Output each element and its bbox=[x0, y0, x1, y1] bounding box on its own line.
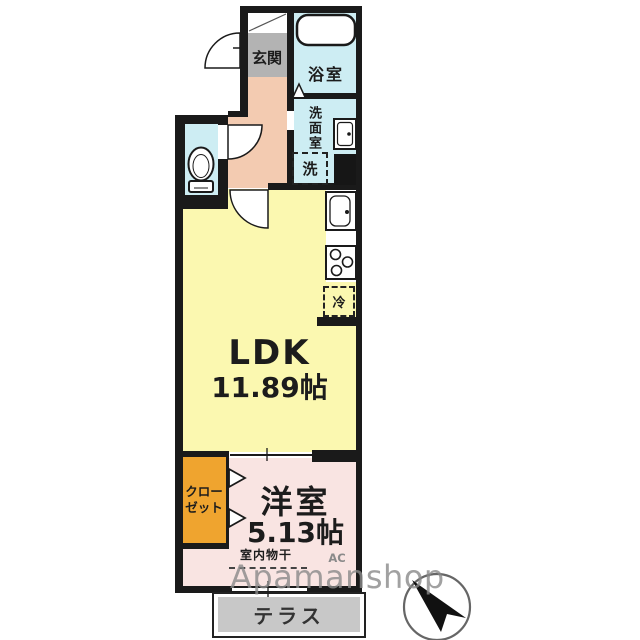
entrance-door-arc bbox=[205, 33, 242, 68]
watermark: Apamanshop bbox=[230, 558, 445, 596]
toilet-icon bbox=[189, 148, 214, 193]
washroom-label: 洗面室 bbox=[304, 100, 323, 156]
washbasin-icon bbox=[334, 119, 356, 149]
floorplan: テラス bbox=[0, 0, 640, 640]
genkan-label: 玄関 bbox=[244, 47, 290, 68]
bedroom-size: 5.13帖 bbox=[229, 511, 362, 551]
fridge-label: 冷 bbox=[332, 292, 345, 311]
bathtub-icon bbox=[297, 15, 355, 45]
closet-label-line2: ゼット bbox=[181, 497, 227, 516]
ldk-size: 11.89帖 bbox=[183, 366, 356, 406]
ldk-door-arc bbox=[230, 190, 268, 228]
washer-space: 洗 bbox=[292, 152, 328, 185]
toilet-door-arc bbox=[228, 125, 262, 159]
bathroom-label: 浴室 bbox=[294, 61, 358, 85]
washer-label: 洗 bbox=[302, 158, 317, 179]
stove-icon bbox=[326, 246, 356, 279]
kitchen-sink-icon bbox=[326, 192, 356, 230]
bath-door-mark bbox=[293, 84, 305, 97]
fridge-space: 冷 bbox=[323, 286, 355, 317]
entry-step-line bbox=[249, 14, 286, 31]
